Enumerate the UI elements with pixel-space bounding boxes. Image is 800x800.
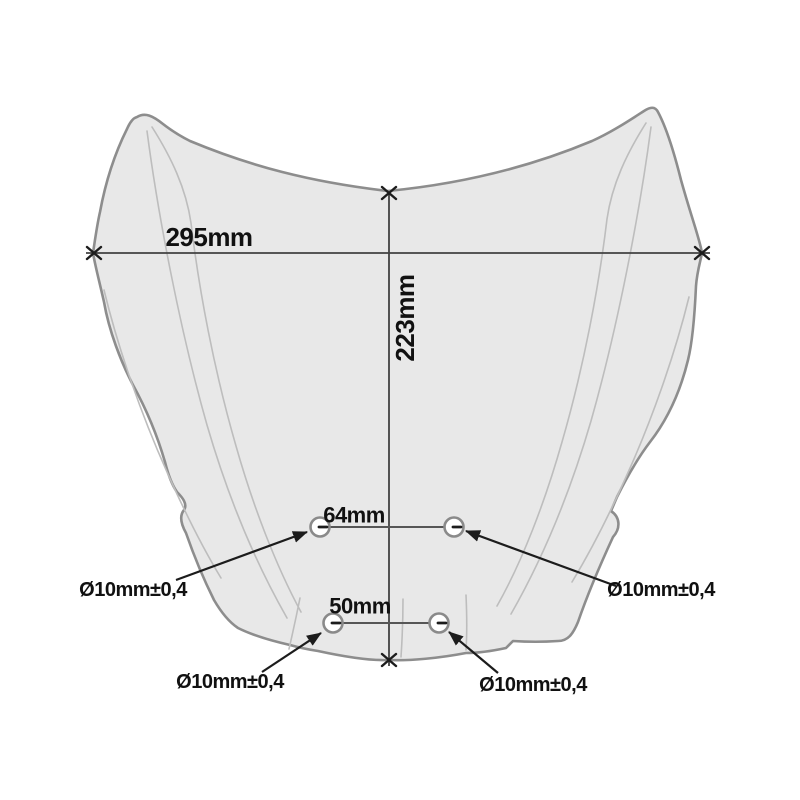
windscreen-dimension-diagram: 295mm 223mm 64mm 50mm Ø10mm±0,4 Ø10mm±0,… — [0, 0, 800, 800]
hole-diameter-label-upper-left: Ø10mm±0,4 — [79, 579, 188, 601]
lower-hole-spacing-label: 50mm — [329, 594, 391, 619]
dimension-drawing-svg: 295mm 223mm 64mm 50mm Ø10mm±0,4 Ø10mm±0,… — [0, 0, 800, 800]
hole-diameter-label-lower-right: Ø10mm±0,4 — [479, 674, 588, 696]
hole-diameter-label-upper-right: Ø10mm±0,4 — [607, 579, 716, 601]
crease-line — [466, 595, 467, 650]
height-dimension-label: 223mm — [390, 274, 420, 361]
hole-diameter-label-lower-left: Ø10mm±0,4 — [176, 671, 285, 693]
upper-hole-spacing-label: 64mm — [323, 503, 385, 528]
width-dimension-label: 295mm — [165, 222, 252, 252]
